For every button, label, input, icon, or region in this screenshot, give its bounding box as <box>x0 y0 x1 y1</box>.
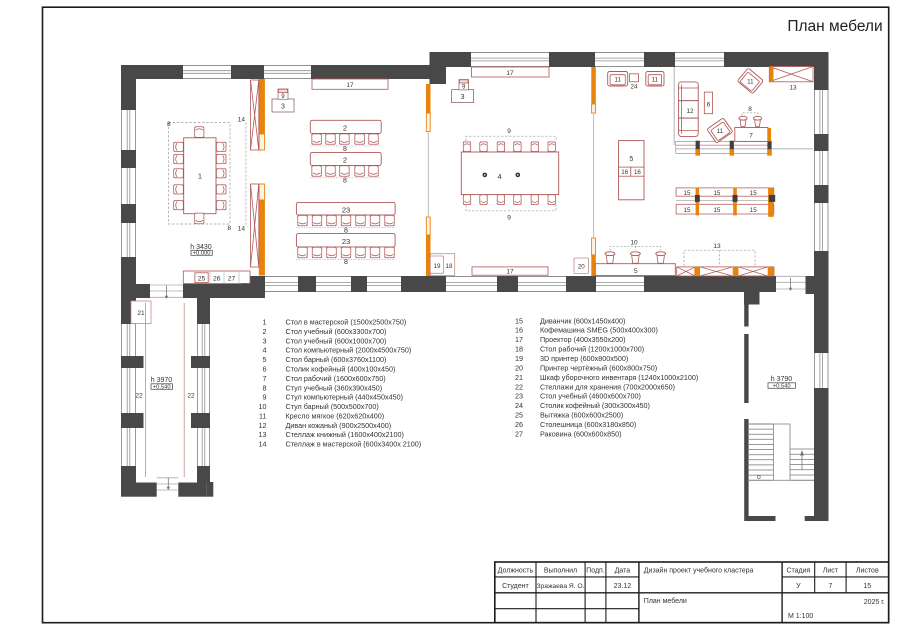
svg-text:13: 13 <box>713 243 721 250</box>
svg-text:3: 3 <box>461 94 465 101</box>
svg-text:Должность: Должность <box>498 567 534 574</box>
svg-text:10: 10 <box>630 239 638 246</box>
svg-text:5: 5 <box>263 355 267 364</box>
svg-text:8: 8 <box>167 121 171 128</box>
svg-text:Столешница (600х3180х850): Столешница (600х3180х850) <box>540 420 636 429</box>
svg-text:Диван кожаный (900х2500х400): Диван кожаный (900х2500х400) <box>286 421 392 430</box>
svg-text:7: 7 <box>749 132 753 139</box>
svg-text:23: 23 <box>342 205 350 214</box>
svg-text:11: 11 <box>259 411 266 420</box>
svg-text:15: 15 <box>863 583 871 590</box>
svg-text:15: 15 <box>750 207 757 214</box>
svg-text:Столик кофейный (400х100х450): Столик кофейный (400х100х450) <box>286 365 396 374</box>
svg-text:12: 12 <box>259 421 267 430</box>
svg-text:Стол рабочий (1200х1000х700): Стол рабочий (1200х1000х700) <box>540 345 644 354</box>
svg-text:Выполнил: Выполнил <box>544 567 577 574</box>
svg-text:Лист: Лист <box>823 567 839 574</box>
svg-text:1: 1 <box>263 318 267 327</box>
svg-text:11: 11 <box>747 78 754 85</box>
svg-text:18: 18 <box>446 263 453 270</box>
svg-text:1: 1 <box>198 172 202 181</box>
svg-text:Вытяжка (600х600х2500): Вытяжка (600х600х2500) <box>540 411 623 420</box>
svg-text:8: 8 <box>227 225 231 232</box>
svg-text:23: 23 <box>342 237 350 246</box>
svg-text:2025 г.: 2025 г. <box>864 599 885 606</box>
svg-text:4: 4 <box>498 172 502 181</box>
svg-text:Дизайн проект учебного кластер: Дизайн проект учебного кластера <box>644 567 754 575</box>
svg-text:Принтер чертёжный (600х800х750: Принтер чертёжный (600х800х750) <box>540 363 657 372</box>
svg-text:Стол рабочий (1600х600х750): Стол рабочий (1600х600х750) <box>286 374 386 383</box>
svg-text:Стол учебный (600х1000х700): Стол учебный (600х1000х700) <box>286 336 387 345</box>
svg-text:17: 17 <box>506 269 514 276</box>
svg-text:+0.540: +0.540 <box>153 384 171 390</box>
svg-text:9: 9 <box>263 393 267 402</box>
svg-text:11: 11 <box>717 128 724 135</box>
svg-text:14: 14 <box>238 117 246 124</box>
svg-text:8: 8 <box>343 178 347 185</box>
svg-text:h 3970: h 3970 <box>151 377 173 384</box>
svg-text:Листов: Листов <box>856 567 879 574</box>
svg-text:25: 25 <box>515 411 523 420</box>
svg-text:12: 12 <box>686 108 694 115</box>
svg-text:22: 22 <box>135 393 143 400</box>
svg-text:6: 6 <box>707 102 711 109</box>
svg-text:24: 24 <box>631 84 638 91</box>
svg-text:+0.540: +0.540 <box>773 383 791 389</box>
svg-text:19: 19 <box>434 263 441 270</box>
svg-text:21: 21 <box>137 310 145 317</box>
svg-text:15: 15 <box>750 190 757 197</box>
svg-text:27: 27 <box>228 275 236 282</box>
svg-text:22: 22 <box>515 382 523 391</box>
svg-text:2: 2 <box>343 156 347 165</box>
svg-text:17: 17 <box>346 82 354 89</box>
svg-text:М 1:100: М 1:100 <box>788 613 813 620</box>
svg-text:5: 5 <box>634 268 638 275</box>
svg-text:11: 11 <box>652 76 659 83</box>
svg-text:24: 24 <box>515 401 523 410</box>
svg-text:17: 17 <box>506 70 514 77</box>
svg-text:Стадия: Стадия <box>786 567 810 574</box>
svg-text:3: 3 <box>263 336 267 345</box>
svg-text:5: 5 <box>629 156 633 163</box>
svg-text:13: 13 <box>789 85 797 92</box>
svg-text:27: 27 <box>515 430 523 439</box>
svg-text:6: 6 <box>263 365 267 374</box>
svg-text:15: 15 <box>684 190 691 197</box>
svg-text:Шкаф уборочного инвентаря (124: Шкаф уборочного инвентаря (1240х1000х210… <box>540 373 698 382</box>
svg-text:Стол учебный (600х3300х700): Стол учебный (600х3300х700) <box>286 327 387 336</box>
svg-text:3D принтер (600х800х500): 3D принтер (600х800х500) <box>540 354 628 363</box>
svg-text:Стул компьютерный (440х450х450: Стул компьютерный (440х450х450) <box>286 393 404 402</box>
svg-text:9: 9 <box>507 215 511 222</box>
svg-text:Столик кофейный (300х300х450): Столик кофейный (300х300х450) <box>540 401 650 410</box>
svg-text:Стол компьютерный (2000х4500х7: Стол компьютерный (2000х4500х750) <box>286 346 412 355</box>
svg-text:9: 9 <box>507 128 511 135</box>
svg-text:8: 8 <box>344 259 348 266</box>
svg-text:Стол барный (600х3760х1100): Стол барный (600х3760х1100) <box>286 355 387 364</box>
svg-text:Стул учебный (360х390х450): Стул учебный (360х390х450) <box>286 383 383 392</box>
svg-text:19: 19 <box>515 354 523 363</box>
svg-text:Кресло мягкое (620х620х400): Кресло мягкое (620х620х400) <box>286 411 385 420</box>
svg-text:25: 25 <box>198 275 206 282</box>
svg-text:Дата: Дата <box>615 567 631 574</box>
svg-text:17: 17 <box>515 335 523 344</box>
svg-text:15: 15 <box>515 316 523 325</box>
svg-text:Проектор (400х3550х200): Проектор (400х3550х200) <box>540 335 626 344</box>
svg-text:14: 14 <box>238 226 246 233</box>
svg-text:9: 9 <box>462 83 466 90</box>
svg-text:23: 23 <box>515 392 523 401</box>
svg-text:Стеллажи для хранения (700х200: Стеллажи для хранения (700х2000х650) <box>540 382 675 391</box>
svg-text:План мебели: План мебели <box>787 18 882 35</box>
svg-text:Раковина (600х600х850): Раковина (600х600х850) <box>540 430 622 439</box>
svg-text:15: 15 <box>684 207 691 214</box>
svg-text:2: 2 <box>343 124 347 133</box>
svg-text:7: 7 <box>828 583 832 590</box>
svg-text:26: 26 <box>515 420 523 429</box>
svg-text:План мебели: План мебели <box>644 597 687 605</box>
svg-text:10: 10 <box>259 402 267 411</box>
svg-text:8: 8 <box>263 383 267 392</box>
svg-text:h 3790: h 3790 <box>771 376 793 383</box>
svg-text:3: 3 <box>281 104 285 111</box>
svg-text:Стеллаж книжный (1600х400х2100: Стеллаж книжный (1600х400х2100) <box>286 430 404 439</box>
svg-text:+0.000: +0.000 <box>193 250 211 256</box>
svg-text:15: 15 <box>713 207 720 214</box>
svg-text:8: 8 <box>748 106 752 113</box>
svg-text:4: 4 <box>263 346 267 355</box>
svg-text:15: 15 <box>713 190 720 197</box>
svg-text:Стеллаж в мастерской (600х3400: Стеллаж в мастерской (600х3400х 2100) <box>286 440 422 449</box>
svg-text:20: 20 <box>578 263 585 270</box>
svg-text:Подп.: Подп. <box>586 567 605 574</box>
svg-text:16: 16 <box>621 169 628 176</box>
svg-text:20: 20 <box>515 363 523 372</box>
svg-text:9: 9 <box>281 93 285 100</box>
svg-text:У: У <box>796 583 801 590</box>
svg-text:8: 8 <box>343 146 347 153</box>
svg-text:14: 14 <box>259 440 267 449</box>
svg-text:21: 21 <box>515 373 523 382</box>
svg-text:2: 2 <box>263 327 267 336</box>
svg-text:16: 16 <box>634 169 641 176</box>
svg-text:Стул барный (500х500х700): Стул барный (500х500х700) <box>286 402 379 411</box>
svg-text:26: 26 <box>213 275 221 282</box>
svg-text:Кофемашина SMEG (500х400х300): Кофемашина SMEG (500х400х300) <box>540 326 658 335</box>
svg-text:Стол в мастерской (1500х2500х7: Стол в мастерской (1500х2500х750) <box>286 318 407 327</box>
svg-text:11: 11 <box>614 76 621 83</box>
svg-text:22: 22 <box>187 393 195 400</box>
svg-text:23.12: 23.12 <box>614 583 632 590</box>
svg-text:Стол учебный (4600х600х700): Стол учебный (4600х600х700) <box>540 392 641 401</box>
svg-text:Диванчик (600х1450х400): Диванчик (600х1450х400) <box>540 316 625 325</box>
svg-text:7: 7 <box>263 374 267 383</box>
svg-text:Зражаева Я. О.: Зражаева Я. О. <box>536 583 584 590</box>
svg-text:18: 18 <box>515 345 523 354</box>
svg-text:13: 13 <box>259 430 267 439</box>
svg-text:Студент: Студент <box>502 583 529 590</box>
svg-text:16: 16 <box>515 326 523 335</box>
